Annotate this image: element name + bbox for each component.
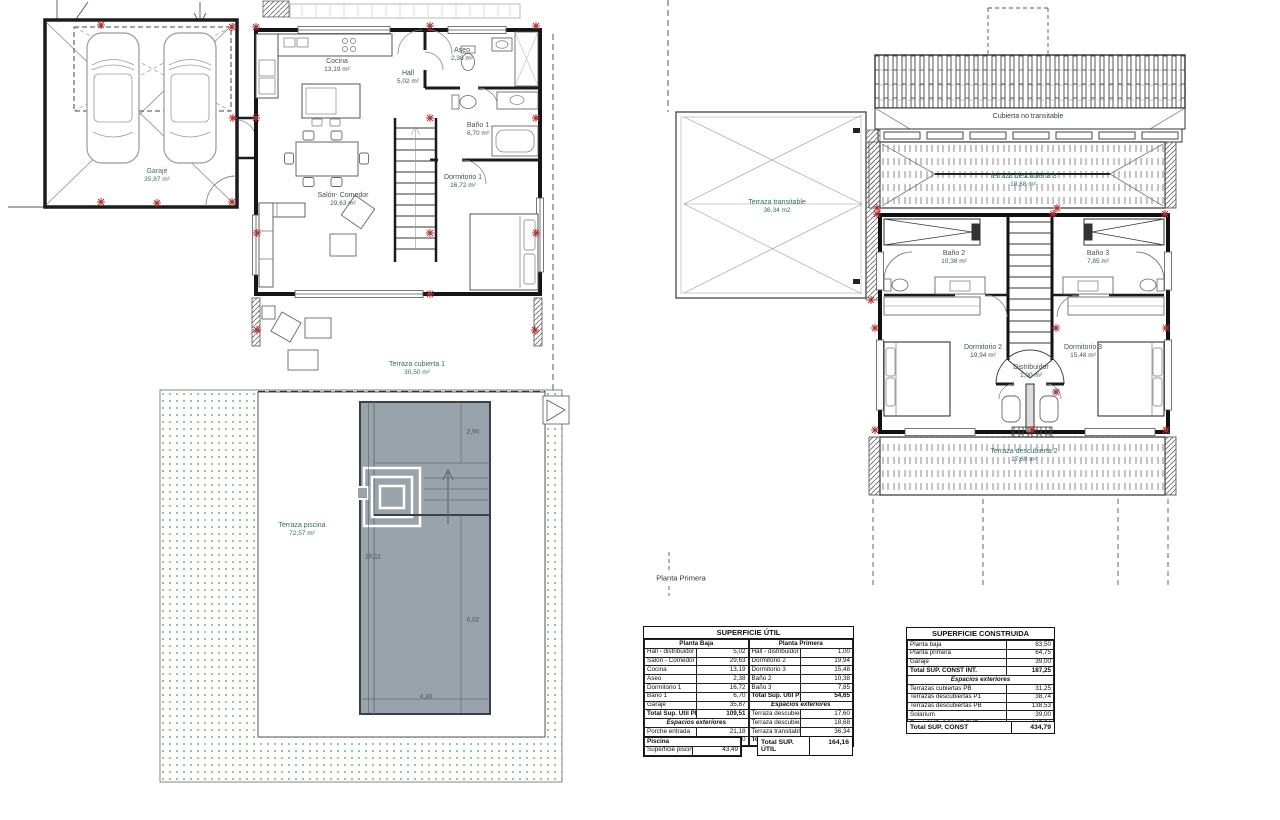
table-row: Espacios exteriores bbox=[645, 719, 749, 728]
bed-dormitorio1 bbox=[470, 214, 538, 290]
table-total-row: Total Sup. Útil P154,65 bbox=[749, 692, 853, 701]
piscina-table: Piscina Superficie piscina43,49 bbox=[643, 736, 742, 757]
ground-floor-plan bbox=[8, 0, 569, 782]
house-ground bbox=[253, 27, 544, 298]
table-title: SUPERFICIE CONSTRUIDA bbox=[907, 628, 1054, 640]
total-util-box: Total SUP. ÚTIL 164,16 bbox=[757, 736, 853, 756]
table-row: Piscina bbox=[645, 738, 741, 747]
table-row: Hall - distribuidor1,00 bbox=[749, 648, 853, 657]
table-row: Terraza descubierta 217,60 bbox=[749, 710, 853, 719]
table-row: Planta Primera bbox=[749, 640, 853, 649]
table-row: Baño 210,38 bbox=[749, 675, 853, 684]
terraza-descubierta-2 bbox=[869, 437, 1176, 495]
table-row: Hall - distribuidor5,02 bbox=[645, 648, 749, 657]
table-row: Planta Baja bbox=[645, 640, 749, 649]
table-row: Terraza descubierta 318,68 bbox=[749, 719, 853, 728]
table-row: Planta primera64,75 bbox=[908, 649, 1054, 658]
table-row: Dormitorio 116,72 bbox=[645, 683, 749, 692]
planta-primera-column: Planta Primera Hall - distribuidor1,00 D… bbox=[749, 639, 854, 746]
table-row: Salón - Comedor29,63 bbox=[645, 657, 749, 666]
table-row: Terraza transitable36,34 bbox=[749, 727, 853, 736]
table-row: Baño 16,70 bbox=[645, 692, 749, 701]
table-row: Porche entrada21,18 bbox=[645, 727, 749, 736]
roof-cubierta bbox=[875, 55, 1185, 142]
table-row: Solarium39,00 bbox=[908, 711, 1054, 720]
first-floor-plan bbox=[668, 0, 1185, 596]
terraza-descubierta-3 bbox=[869, 142, 1176, 208]
pool-dim: 10,11 bbox=[365, 554, 381, 561]
table-row: Garaje35,87 bbox=[645, 701, 749, 710]
superficie-util-table: SUPERFICIE ÚTIL Planta Baja Hall - distr… bbox=[643, 626, 854, 747]
corner-flag bbox=[543, 396, 569, 424]
pool-dim: 2,90 bbox=[467, 429, 480, 436]
table-row: Terrazas cubiertas PB31,25 bbox=[908, 684, 1054, 693]
table-row: Dormitorio 315,48 bbox=[749, 666, 853, 675]
plan-drawing bbox=[0, 0, 1280, 820]
total-const-box: Total SUP. CONST 434,79 bbox=[906, 721, 1055, 734]
table-row: Superficie piscina43,49 bbox=[645, 746, 741, 755]
table-row: Terrazas descubiertas PB138,53 bbox=[908, 702, 1054, 711]
plan-caption: Planta Primera bbox=[656, 574, 706, 583]
table-title: SUPERFICIE ÚTIL bbox=[644, 627, 853, 639]
table-row: Planta baja83,50 bbox=[908, 641, 1054, 650]
table-row: Cocina13,19 bbox=[645, 666, 749, 675]
table-row: Espacios exteriores bbox=[749, 701, 853, 710]
table-row: Espacios exteriores bbox=[908, 676, 1054, 685]
table-row: Baño 37,85 bbox=[749, 683, 853, 692]
floor-plan-sheet: Garaje35,87 m² Cocina13,19 m² Hall5,02 m… bbox=[0, 0, 1280, 820]
table-row: Garaje39,00 bbox=[908, 658, 1054, 667]
garage bbox=[45, 20, 256, 207]
terraza-cubierta bbox=[252, 298, 542, 370]
pool-dim: 6,02 bbox=[467, 617, 480, 624]
table-row: Dormitorio 219,94 bbox=[749, 657, 853, 666]
table-row: Aseo2,38 bbox=[645, 675, 749, 684]
table-total-row: Total SUP. CONST INT.187,25 bbox=[908, 667, 1054, 676]
pool-dim: 4,30 bbox=[420, 694, 433, 701]
table-row: Terrazas descubiertas P138,74 bbox=[908, 693, 1054, 702]
car-icon bbox=[164, 33, 216, 163]
house-first bbox=[877, 215, 1172, 437]
table-total-row: Total Sup. Útil PB109,51 bbox=[645, 710, 749, 719]
car-icon bbox=[87, 33, 139, 163]
terraza-transitable bbox=[676, 112, 880, 300]
superficie-construida-table: SUPERFICIE CONSTRUIDA Planta baja83,50 P… bbox=[906, 627, 1055, 730]
planta-baja-column: Planta Baja Hall - distribuidor5,02 Saló… bbox=[644, 639, 749, 746]
